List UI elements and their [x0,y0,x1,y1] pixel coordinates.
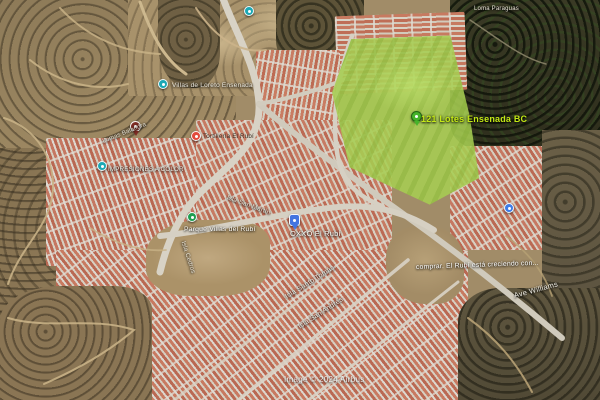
marker-tail [414,121,420,129]
marker-dot [195,135,198,138]
marker-dot [248,10,251,13]
marker-dot [101,165,104,168]
poi-marker-impresiones[interactable] [97,161,107,171]
green-park-dot-icon [187,212,197,222]
poi-label-parque: Parque Villas del Rubí [184,226,256,233]
imagery-attribution: Image © 2024 Airbus [284,375,365,384]
marker-dot [191,216,194,219]
terrain-scrub-bottomright [458,288,600,400]
terrain-dark-vegetation [450,0,600,148]
red-poi-dot-icon [191,131,201,141]
marker-dot [162,83,165,86]
teal-poi-dot-icon [97,161,107,171]
terrain-brush-patch [158,0,220,88]
poi-marker-top-center[interactable] [244,6,254,16]
teal-poi-dot-icon [158,79,168,89]
lot-title-label: 121 Lotes Ensenada BC [421,114,527,124]
poi-label-tortilleria: Tortillería El Rubí [203,133,254,140]
poi-marker-right[interactable] [504,203,514,213]
poi-label-villas-loreto: Villas de Loreto Ensenada [172,82,253,89]
marker-dot [415,115,418,118]
poi-marker-red[interactable] [191,131,201,141]
area-label-loma-paraguas: Loma Paraguas [474,6,519,12]
poi-label-impresiones: IMPRESIONES A COLOR [108,166,184,173]
blue-poi-dot-icon [504,203,514,213]
marker-dot [293,219,296,222]
poi-label-oxxo: OXXO El Rubí [290,229,341,238]
park-poi-marker[interactable] [187,212,197,222]
teal-poi-dot-icon [244,6,254,16]
marker-dot [508,207,511,210]
terrain-scrub-bottomleft [0,286,152,400]
poi-marker-villas-loreto[interactable] [158,79,168,89]
satellite-map[interactable]: Image © 2024 Airbus 121 Lotes Ensenada B… [0,0,600,400]
